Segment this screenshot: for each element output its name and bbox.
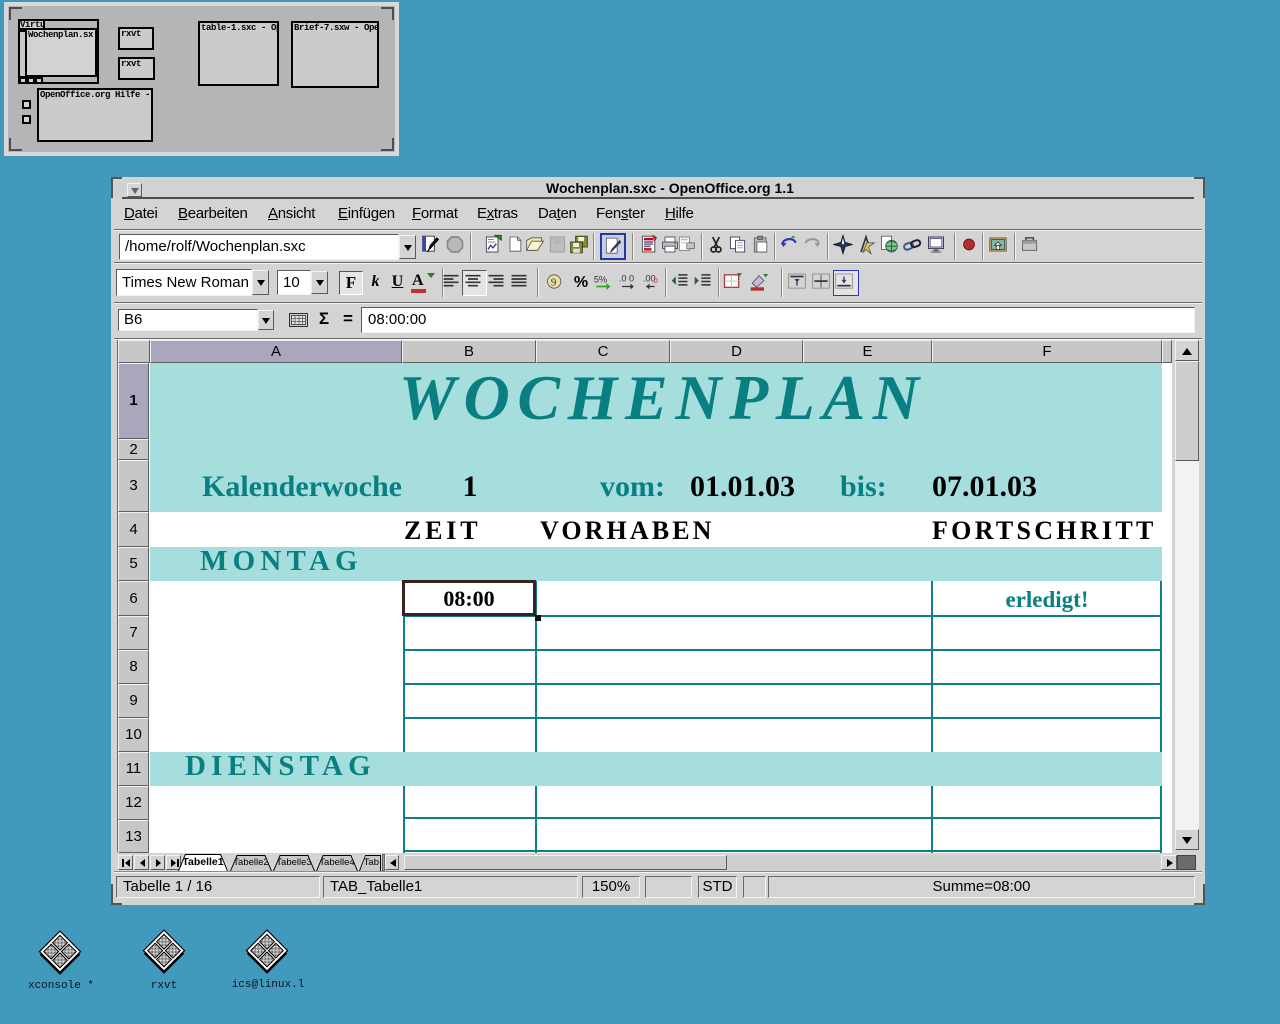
svg-text:0: 0 xyxy=(654,276,658,285)
svg-text:9: 9 xyxy=(551,277,556,289)
svg-text:.0 0: .0 0 xyxy=(619,274,634,284)
svg-text:5%: 5% xyxy=(594,274,607,284)
